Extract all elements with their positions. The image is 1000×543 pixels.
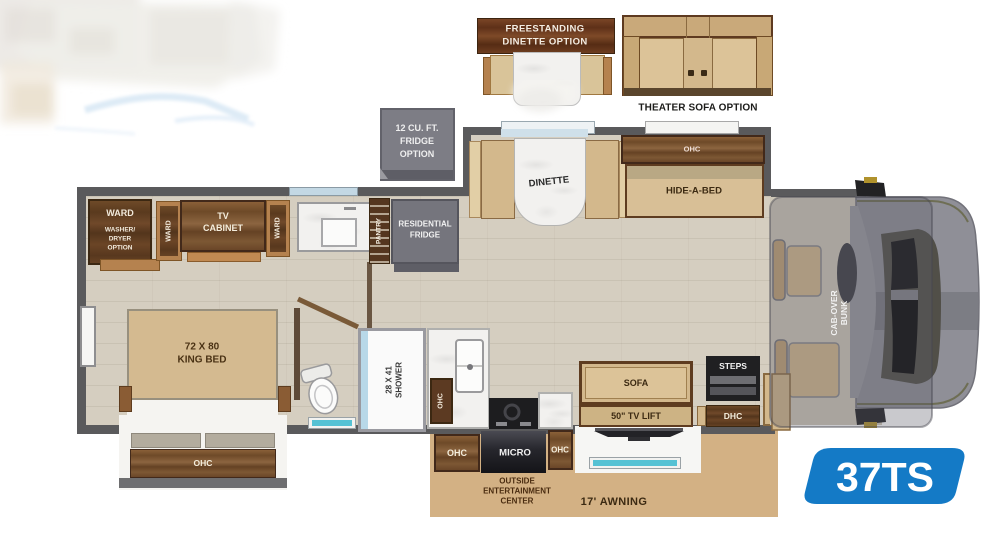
svg-text:BUNK: BUNK xyxy=(839,300,849,325)
svg-text:37TS: 37TS xyxy=(836,454,934,500)
svg-text:CAB-OVER: CAB-OVER xyxy=(829,290,839,335)
